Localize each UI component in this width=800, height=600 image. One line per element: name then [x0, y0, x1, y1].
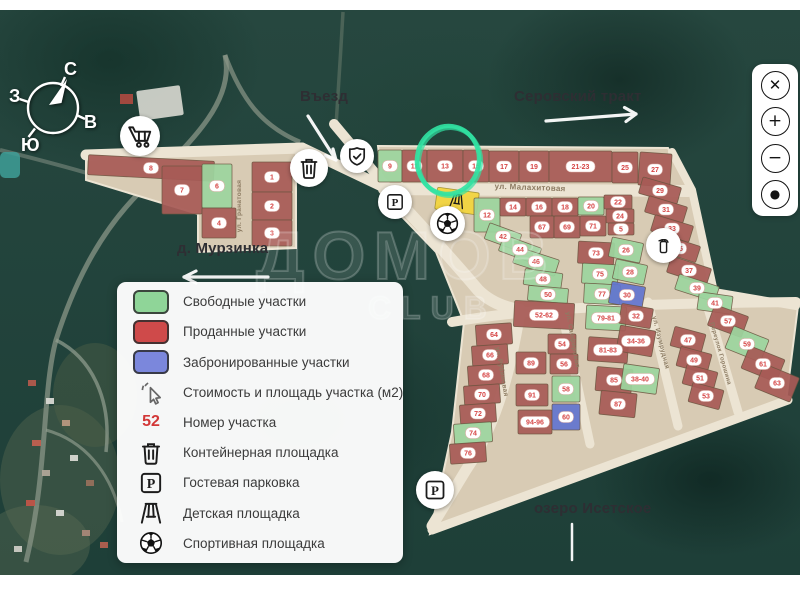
legend-item-2: Забронированные участки — [117, 348, 403, 377]
plot-13[interactable] — [427, 150, 463, 182]
soccer-icon — [132, 529, 170, 557]
legend-item-4: 52Номер участка — [117, 408, 403, 437]
svg-text:P: P — [431, 483, 439, 498]
plot-71[interactable] — [580, 216, 606, 236]
plot-20[interactable] — [578, 197, 604, 215]
cursor-click-icon — [132, 378, 170, 406]
plot-14[interactable] — [500, 198, 526, 216]
plot-89[interactable] — [516, 352, 546, 374]
plot-72[interactable] — [459, 403, 496, 424]
plot-54[interactable] — [548, 334, 576, 354]
plot-68[interactable] — [467, 364, 504, 386]
plot-6[interactable] — [202, 164, 232, 208]
plot-87[interactable] — [599, 390, 637, 418]
plot-17[interactable] — [489, 151, 519, 182]
plot-67[interactable] — [530, 216, 554, 238]
guest-parking-south-icon[interactable]: P — [416, 471, 454, 509]
plot-91[interactable] — [516, 384, 548, 406]
hydrant-icon[interactable] — [646, 228, 681, 263]
swing-icon — [132, 499, 170, 527]
compass-south-label: Ю — [21, 135, 40, 155]
legend-label: Проданные участки — [183, 324, 306, 339]
compass-west-label: З — [9, 86, 20, 106]
legend-label: Забронированные участки — [183, 355, 350, 370]
legend-label: Контейнерная площадка — [183, 445, 338, 460]
plot-16[interactable] — [526, 198, 552, 216]
compass: С З В Ю — [4, 56, 108, 160]
close-button[interactable]: ✕ — [761, 71, 790, 100]
legend-item-5: Контейнерная площадка — [117, 438, 403, 467]
trash-icon[interactable] — [290, 149, 328, 187]
entrance-label: Въезд — [300, 88, 348, 105]
letterbox-bottom — [0, 575, 800, 600]
legend-item-6: PГостевая парковка — [117, 468, 403, 497]
plot-18[interactable] — [552, 198, 578, 216]
lake-label: озеро Исетское — [534, 500, 651, 517]
village-label: д. Мурзинка — [177, 240, 268, 257]
plot-58[interactable] — [552, 376, 580, 402]
legend-label: Детская площадка — [183, 506, 300, 521]
legend-item-1: Проданные участки — [117, 317, 403, 346]
plot-15[interactable] — [463, 150, 489, 182]
shield-check-icon[interactable] — [340, 139, 374, 173]
plot-94-96[interactable] — [518, 410, 552, 434]
zoom-out-button[interactable]: − — [761, 144, 790, 173]
compass-east-label: В — [84, 112, 97, 132]
legend-panel: Свободные участкиПроданные участкиЗаброн… — [117, 282, 403, 563]
map-controls: ✕+−● — [752, 64, 798, 216]
sold-swatch — [132, 320, 170, 344]
legend-label: Номер участка — [183, 415, 276, 430]
legend-label: Стоимость и площадь участка (м2) — [183, 385, 403, 400]
svg-text:P: P — [392, 197, 399, 209]
legend-item-7: Детская площадка — [117, 499, 403, 528]
plot-25[interactable] — [612, 152, 638, 183]
plot-76[interactable] — [449, 442, 486, 464]
plot-24[interactable] — [606, 209, 634, 223]
plot-21-23[interactable] — [549, 151, 612, 182]
plot-11[interactable] — [402, 150, 427, 182]
plot-70[interactable] — [463, 384, 500, 405]
plot-2[interactable] — [252, 192, 292, 220]
letterbox-top — [0, 0, 800, 10]
shop-cart-icon[interactable] — [120, 116, 160, 156]
trash-icon — [132, 439, 170, 467]
plot-50[interactable] — [527, 285, 568, 303]
plot-4[interactable] — [202, 208, 236, 238]
highway-label: Серовский тракт — [514, 88, 642, 105]
parking-icon: P — [132, 469, 170, 497]
legend-label: Спортивная площадка — [183, 536, 325, 551]
legend-label: Свободные участки — [183, 294, 306, 309]
plot-56[interactable] — [550, 354, 578, 374]
guest-parking-north-icon[interactable]: P — [378, 185, 412, 219]
sports-ground-icon[interactable] — [430, 206, 465, 241]
free-swatch — [132, 290, 170, 314]
plot-64[interactable] — [475, 323, 512, 346]
plot-69[interactable] — [554, 216, 580, 238]
compass-north-label: С — [64, 59, 77, 79]
plot-9[interactable] — [378, 150, 402, 182]
plot-52-62[interactable] — [513, 300, 574, 329]
plot-1[interactable] — [252, 162, 292, 192]
plot-5[interactable] — [608, 223, 634, 235]
plot-74[interactable] — [453, 422, 492, 445]
map-viewer: 87641239111315171921-2325271214161820222… — [0, 0, 800, 600]
legend-item-8: Спортивная площадка — [117, 529, 403, 558]
plot-7[interactable] — [162, 166, 202, 214]
plot-number-sample: 52 — [132, 413, 170, 431]
reserved-swatch — [132, 350, 170, 374]
svg-text:P: P — [147, 477, 156, 492]
plot-22[interactable] — [604, 195, 632, 209]
plot-19[interactable] — [519, 151, 549, 182]
plot-66[interactable] — [471, 344, 508, 366]
legend-item-3: Стоимость и площадь участка (м2) — [117, 378, 403, 407]
legend-item-0: Свободные участки — [117, 287, 403, 316]
locate-button[interactable]: ● — [761, 180, 790, 209]
zoom-in-button[interactable]: + — [761, 107, 790, 136]
plot-60[interactable] — [552, 404, 580, 430]
plot-38-40[interactable] — [620, 364, 659, 395]
legend-label: Гостевая парковка — [183, 475, 300, 490]
